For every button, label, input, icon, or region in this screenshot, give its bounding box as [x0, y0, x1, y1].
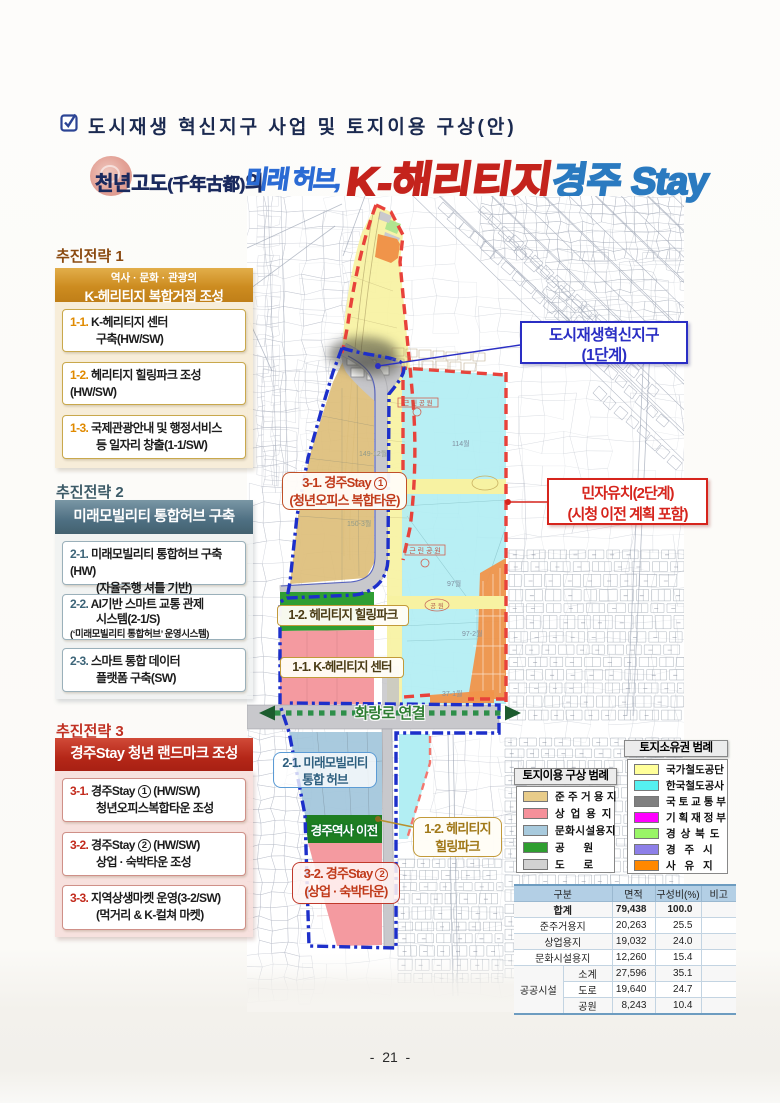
svg-text:근 린 공 원: 근 린 공 원	[409, 546, 441, 555]
svg-text:150-3월: 150-3월	[347, 519, 371, 528]
svg-text:37-1월: 37-1월	[442, 689, 462, 698]
svg-text:근 린 공 원: 근 린 공 원	[403, 398, 432, 407]
svg-text:114월: 114월	[452, 439, 470, 448]
svg-text:공 원: 공 원	[430, 601, 444, 610]
svg-text:149-12월: 149-12월	[359, 449, 387, 458]
svg-text:97월: 97월	[447, 579, 461, 588]
svg-text:97-2월: 97-2월	[462, 629, 482, 638]
